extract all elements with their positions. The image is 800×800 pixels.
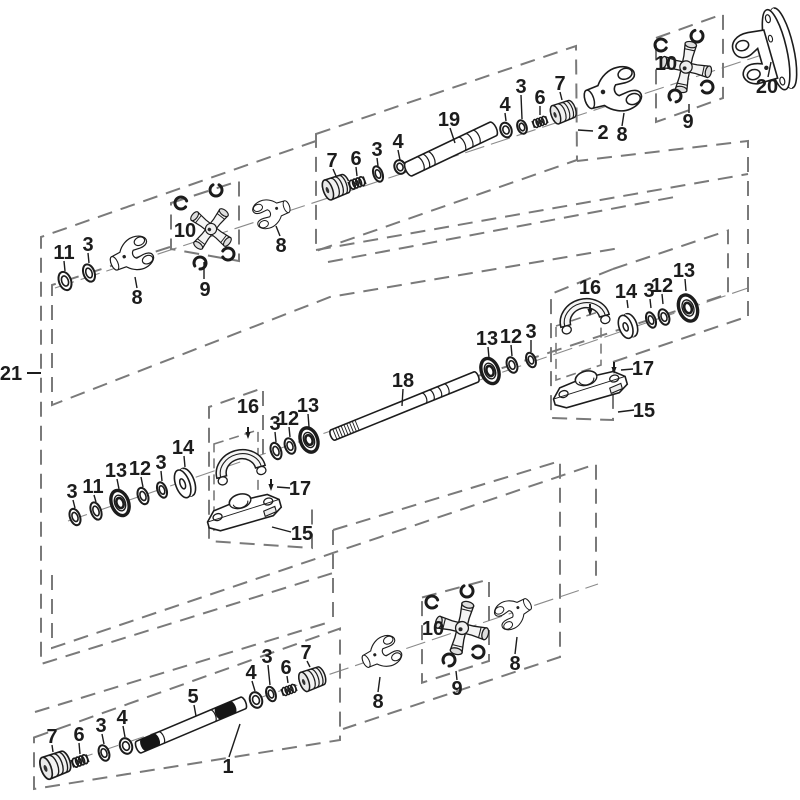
svg-text:7: 7 xyxy=(300,642,311,664)
svg-text:12: 12 xyxy=(129,458,151,480)
svg-text:8: 8 xyxy=(372,691,383,713)
svg-text:6: 6 xyxy=(73,724,84,746)
svg-text:4: 4 xyxy=(245,662,257,684)
svg-text:15: 15 xyxy=(291,523,313,545)
svg-text:9: 9 xyxy=(199,279,210,301)
svg-text:10: 10 xyxy=(174,220,196,242)
svg-text:5: 5 xyxy=(187,686,198,708)
svg-text:2: 2 xyxy=(597,122,608,144)
svg-text:6: 6 xyxy=(280,657,291,679)
svg-text:13: 13 xyxy=(476,328,498,350)
svg-text:19: 19 xyxy=(438,109,460,131)
svg-text:8: 8 xyxy=(616,124,627,146)
svg-text:3: 3 xyxy=(261,646,272,668)
svg-text:3: 3 xyxy=(66,481,77,503)
svg-text:17: 17 xyxy=(289,478,311,500)
svg-text:7: 7 xyxy=(46,726,57,748)
svg-text:3: 3 xyxy=(515,76,526,98)
svg-text:11: 11 xyxy=(82,476,103,498)
svg-text:20: 20 xyxy=(756,76,778,98)
svg-text:6: 6 xyxy=(534,87,545,109)
svg-text:11: 11 xyxy=(53,242,74,264)
svg-text:3: 3 xyxy=(371,139,382,161)
svg-text:13: 13 xyxy=(297,395,319,417)
svg-text:10: 10 xyxy=(655,53,677,75)
svg-text:3: 3 xyxy=(82,234,93,256)
svg-text:3: 3 xyxy=(95,715,106,737)
svg-text:15: 15 xyxy=(633,400,655,422)
svg-text:13: 13 xyxy=(105,460,127,482)
svg-text:3: 3 xyxy=(155,452,166,474)
svg-text:12: 12 xyxy=(651,275,673,297)
svg-text:16: 16 xyxy=(579,277,601,299)
svg-text:8: 8 xyxy=(275,235,286,257)
svg-text:6: 6 xyxy=(350,148,361,170)
svg-text:4: 4 xyxy=(392,131,404,153)
svg-text:12: 12 xyxy=(277,408,299,430)
svg-text:9: 9 xyxy=(451,678,462,700)
svg-text:18: 18 xyxy=(392,370,414,392)
svg-text:14: 14 xyxy=(615,281,638,303)
svg-text:4: 4 xyxy=(116,707,128,729)
svg-text:7: 7 xyxy=(326,150,337,172)
svg-text:10: 10 xyxy=(422,618,444,640)
svg-text:8: 8 xyxy=(131,287,142,309)
svg-text:1: 1 xyxy=(222,756,233,778)
svg-text:4: 4 xyxy=(499,94,511,116)
svg-text:16: 16 xyxy=(237,396,259,418)
svg-text:21: 21 xyxy=(0,363,22,385)
svg-text:13: 13 xyxy=(673,260,695,282)
svg-text:9: 9 xyxy=(682,111,693,133)
svg-text:7: 7 xyxy=(554,73,565,95)
svg-text:3: 3 xyxy=(525,321,536,343)
svg-text:17: 17 xyxy=(632,358,654,380)
svg-text:8: 8 xyxy=(509,653,520,675)
svg-text:12: 12 xyxy=(500,326,522,348)
svg-text:14: 14 xyxy=(172,437,195,459)
